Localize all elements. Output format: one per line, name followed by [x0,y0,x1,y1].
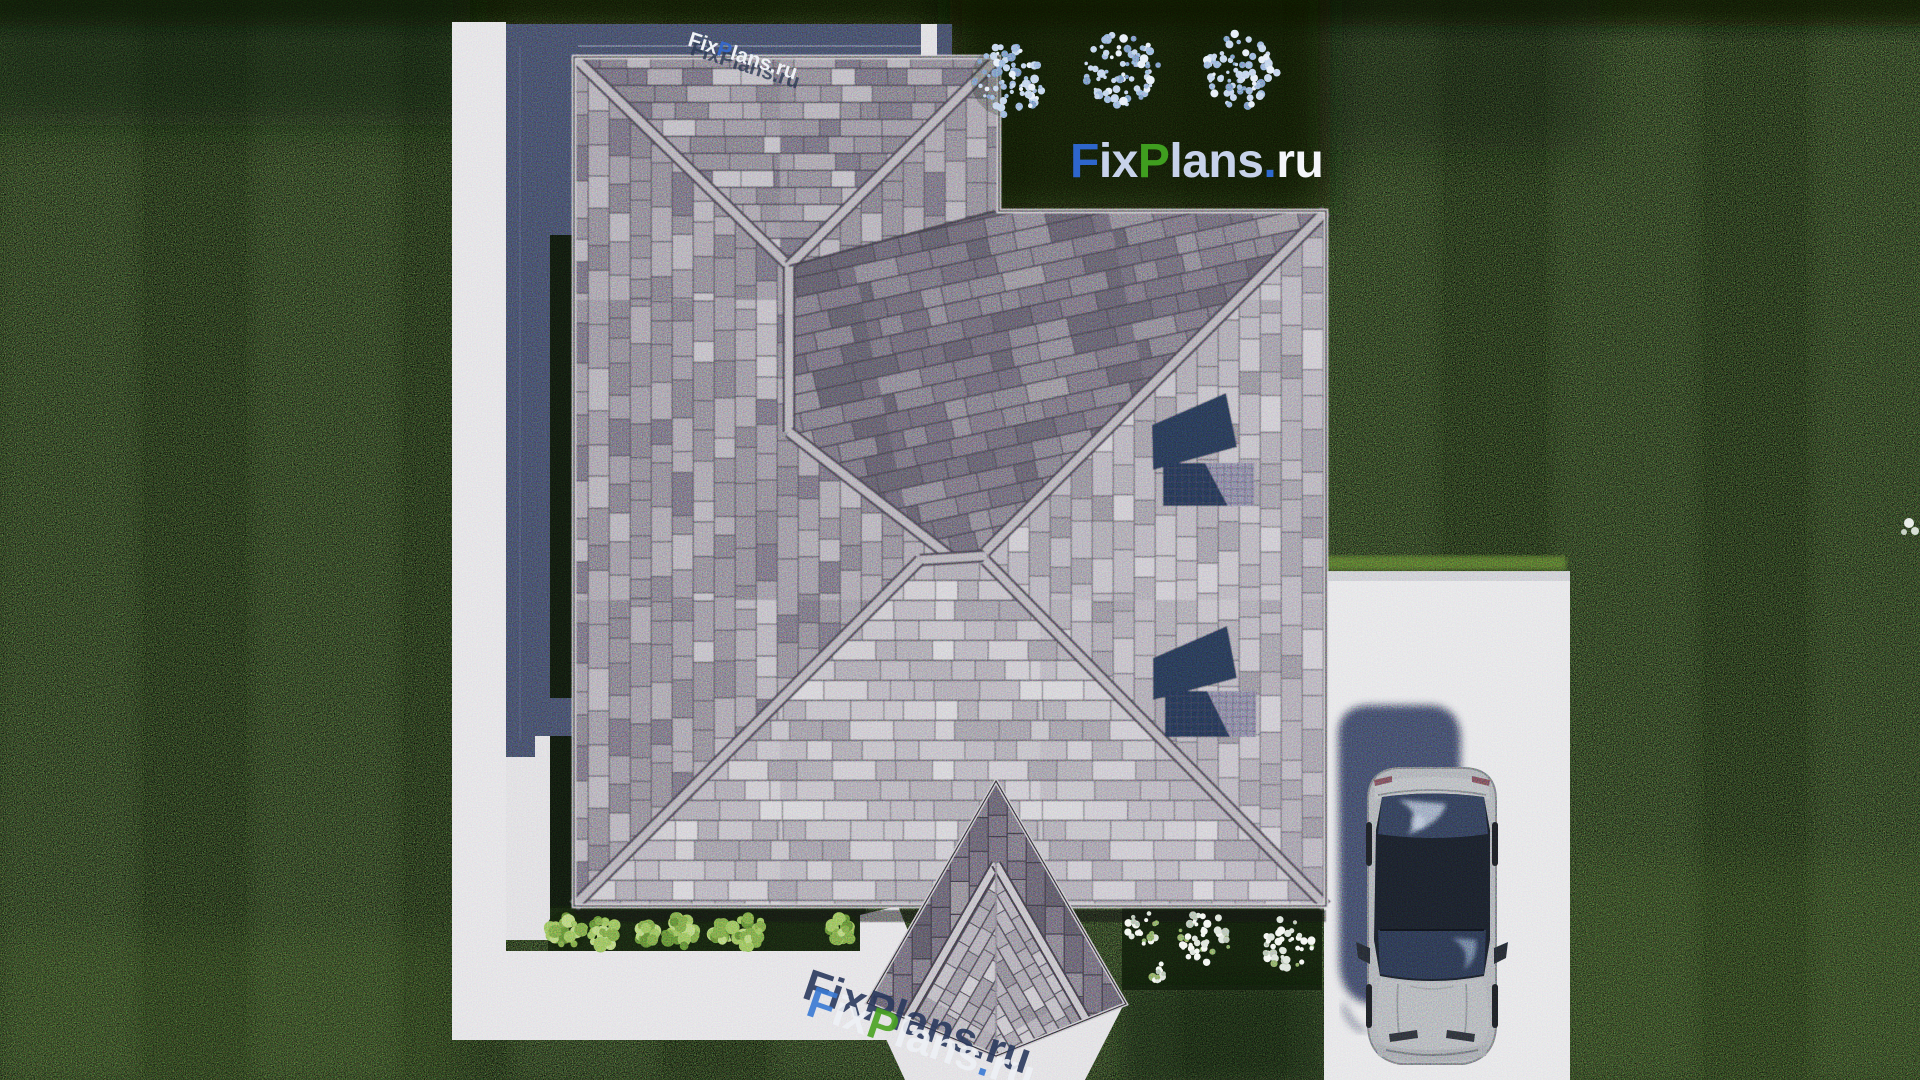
svg-text:FixPlans.ru: FixPlans.ru [1070,135,1323,188]
